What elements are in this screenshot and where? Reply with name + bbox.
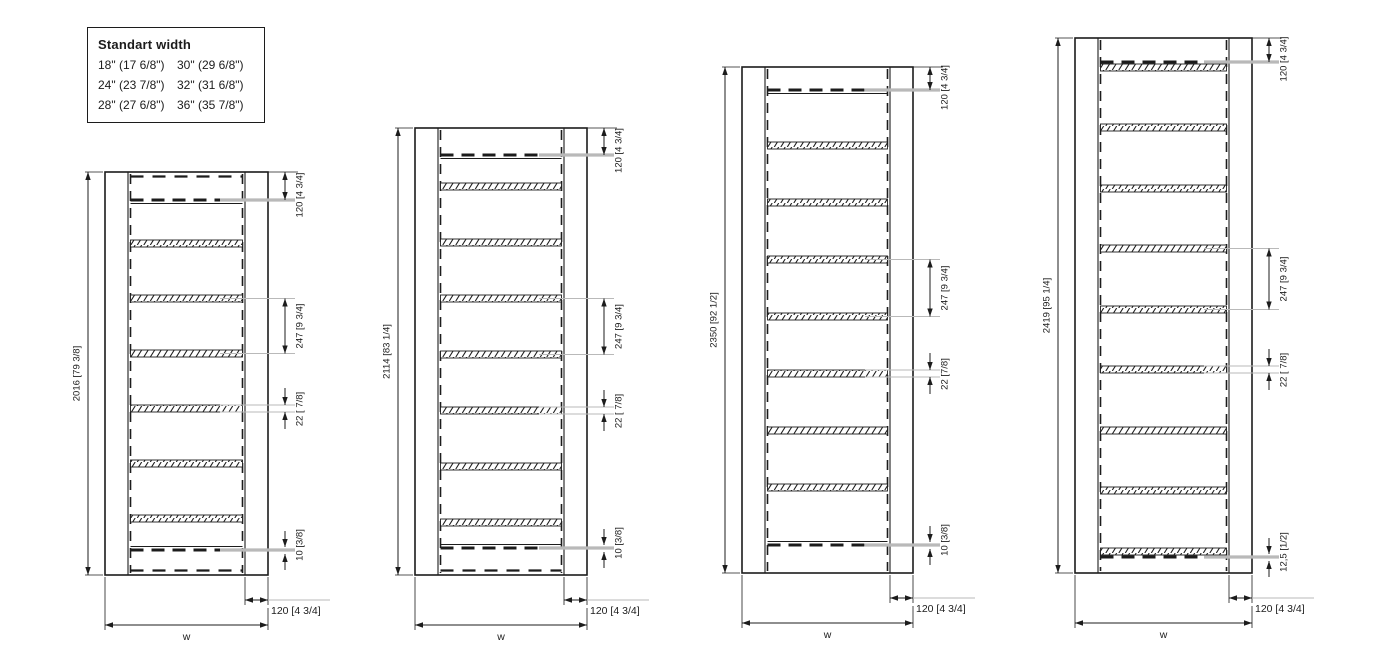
dimension-arrow — [722, 565, 727, 573]
dimension-label: 12,5 [1/2] — [1279, 532, 1290, 572]
dimension-label: 247 [9 3/4] — [295, 304, 306, 349]
dimension-arrow — [282, 299, 287, 307]
dimension-arrow — [85, 567, 90, 575]
dimension-label: 22 [ 7/8] — [295, 392, 306, 426]
rung-hatched — [768, 370, 888, 377]
dimension-arrow — [1244, 620, 1252, 625]
dimension-label: w — [182, 631, 191, 643]
legend-title: Standart width — [98, 37, 254, 52]
dimension-label: 120 [4 3/4] — [1279, 37, 1290, 82]
rail-width-dimension: 120 [4 3/4] — [1229, 575, 1314, 615]
dimension-arrow — [927, 362, 932, 370]
dimension-arrow — [1244, 595, 1252, 600]
dimension-arrow — [282, 346, 287, 354]
rung-hatched — [441, 407, 562, 414]
dimension-arrow — [905, 595, 913, 600]
width-option-28: 28" (27 6/8") — [98, 98, 175, 112]
rung-hatched — [131, 460, 243, 467]
dimension-label: 120 [4 3/4] — [614, 128, 625, 173]
dimension-arrow — [1266, 373, 1271, 381]
overall-width-dimension: w — [742, 575, 913, 641]
width-option-36: 36" (35 7/8") — [177, 98, 254, 112]
dimension-arrow — [722, 67, 727, 75]
dimension-arrow — [742, 620, 750, 625]
dimension-arrow — [105, 622, 113, 627]
ladder-2114: 2114 [83 1/4]120 [4 3/4]247 [9 3/4]22 [ … — [382, 128, 650, 643]
dimension-arrow — [927, 309, 932, 317]
dimension-label: 2419 [95 1/4] — [1042, 278, 1053, 333]
dimension-arrow — [260, 622, 268, 627]
dimension-arrow — [1266, 561, 1271, 569]
rung-hatched — [441, 519, 562, 526]
dimension-arrow — [282, 539, 287, 547]
dimension-label: 22 [7/8] — [940, 358, 951, 390]
dimension-arrow — [890, 595, 898, 600]
dimension-label: 10 [3/8] — [614, 527, 625, 559]
width-option-30: 30" (29 6/8") — [177, 58, 254, 72]
ladder-2419: 2419 [95 1/4]120 [4 3/4]247 [9 3/4]22 [ … — [1042, 37, 1315, 641]
dimension-arrow — [395, 128, 400, 136]
rung-hatched — [768, 199, 888, 206]
dimension-arrow — [601, 399, 606, 407]
dimension-arrow — [927, 549, 932, 557]
dimension-label: 120 [4 3/4] — [590, 605, 640, 617]
rail-width-dimension: 120 [4 3/4] — [245, 577, 330, 617]
dimension-label: 2016 [79 3/8] — [72, 346, 83, 401]
dimension-arrow — [601, 552, 606, 560]
dimension-arrow — [415, 622, 423, 627]
dimension-arrow — [927, 377, 932, 385]
dimension-arrow — [1266, 358, 1271, 366]
dimension-arrow — [1266, 546, 1271, 554]
dimension-arrow — [1266, 249, 1271, 257]
height-dimension: 2350 [92 1/2] — [709, 67, 741, 573]
rung-hatched — [441, 183, 562, 190]
dimension-arrow — [1266, 38, 1271, 46]
rung-hatched — [1101, 124, 1227, 131]
dimension-label: w — [1159, 629, 1168, 641]
standard-width-legend: Standart width 18" (17 6/8") 30" (29 6/8… — [87, 27, 265, 123]
dimension-label: 247 [9 3/4] — [940, 266, 951, 311]
dimension-arrow — [579, 622, 587, 627]
legend-width-options: 18" (17 6/8") 30" (29 6/8") 24" (23 7/8"… — [98, 58, 254, 112]
ladder-frame — [105, 172, 268, 575]
dimension-arrow — [395, 567, 400, 575]
dimension-arrow — [579, 597, 587, 602]
dimension-arrow — [260, 597, 268, 602]
dimension-arrow — [1266, 302, 1271, 310]
rung-hatched — [768, 427, 888, 434]
rung-hatched — [768, 142, 888, 149]
height-dimension: 2114 [83 1/4] — [382, 128, 414, 575]
rung-hatched — [1101, 366, 1227, 373]
rung-hatched — [131, 515, 243, 522]
rung-hatched — [1101, 185, 1227, 192]
dimension-label: 10 [3/8] — [295, 529, 306, 561]
overall-width-dimension: w — [105, 577, 268, 643]
dimension-arrow — [1055, 565, 1060, 573]
dimension-arrow — [245, 597, 253, 602]
dimension-arrow — [282, 172, 287, 180]
dimension-arrow — [282, 397, 287, 405]
width-option-18: 18" (17 6/8") — [98, 58, 175, 72]
dimension-arrow — [927, 67, 932, 75]
dimension-label: 247 [9 3/4] — [614, 304, 625, 349]
height-dimension: 2016 [79 3/8] — [72, 172, 104, 575]
overall-width-dimension: w — [1075, 575, 1252, 641]
rung-hatched — [1101, 64, 1227, 71]
rung-hatched — [1101, 487, 1227, 494]
rail-width-dimension: 120 [4 3/4] — [890, 575, 975, 615]
dimension-label: 120 [4 3/4] — [295, 173, 306, 218]
dimension-label: 120 [4 3/4] — [940, 65, 951, 110]
width-option-24: 24" (23 7/8") — [98, 78, 175, 92]
dimension-arrow — [1229, 595, 1237, 600]
dimension-label: w — [823, 629, 832, 641]
dimension-arrow — [601, 347, 606, 355]
dimension-arrow — [85, 172, 90, 180]
rung-hatched — [1101, 427, 1227, 434]
overall-width-dimension: w — [415, 577, 587, 643]
ladder-2016: 2016 [79 3/8]120 [4 3/4]247 [9 3/4]22 [ … — [72, 172, 331, 643]
dimension-label: 22 [ 7/8] — [614, 394, 625, 428]
dimension-arrow — [1055, 38, 1060, 46]
rung-hatched — [768, 484, 888, 491]
dimension-arrow — [601, 128, 606, 136]
dimension-label: 22 [ 7/8] — [1279, 353, 1290, 387]
dimension-label: 120 [4 3/4] — [271, 605, 321, 617]
dimension-label: 120 [4 3/4] — [1255, 603, 1305, 615]
height-dimension: 2419 [95 1/4] — [1042, 38, 1074, 573]
dimension-arrow — [282, 554, 287, 562]
dimension-arrow — [601, 299, 606, 307]
dimension-label: 2114 [83 1/4] — [382, 324, 393, 379]
ladder-2350: 2350 [92 1/2]120 [4 3/4]247 [9 3/4]22 [7… — [709, 65, 976, 641]
dimension-label: 120 [4 3/4] — [916, 603, 966, 615]
rung-hatched — [441, 239, 562, 246]
dimension-arrow — [601, 537, 606, 545]
dimension-arrow — [927, 534, 932, 542]
dimension-arrow — [1075, 620, 1083, 625]
dimension-arrow — [601, 414, 606, 422]
rung-hatched — [131, 240, 243, 247]
rail-width-dimension: 120 [4 3/4] — [564, 577, 649, 617]
dimension-arrow — [927, 260, 932, 268]
dimension-arrow — [282, 412, 287, 420]
rung-hatched — [131, 405, 243, 412]
dimension-label: 10 [3/8] — [940, 524, 951, 556]
rung-hatched — [1101, 548, 1227, 555]
dimension-label: w — [496, 631, 505, 643]
dimension-arrow — [564, 597, 572, 602]
width-option-32: 32" (31 6/8") — [177, 78, 254, 92]
rung-hatched — [441, 463, 562, 470]
dimension-arrow — [905, 620, 913, 625]
dimension-label: 247 [9 3/4] — [1279, 257, 1290, 302]
dimension-label: 2350 [92 1/2] — [709, 292, 720, 347]
